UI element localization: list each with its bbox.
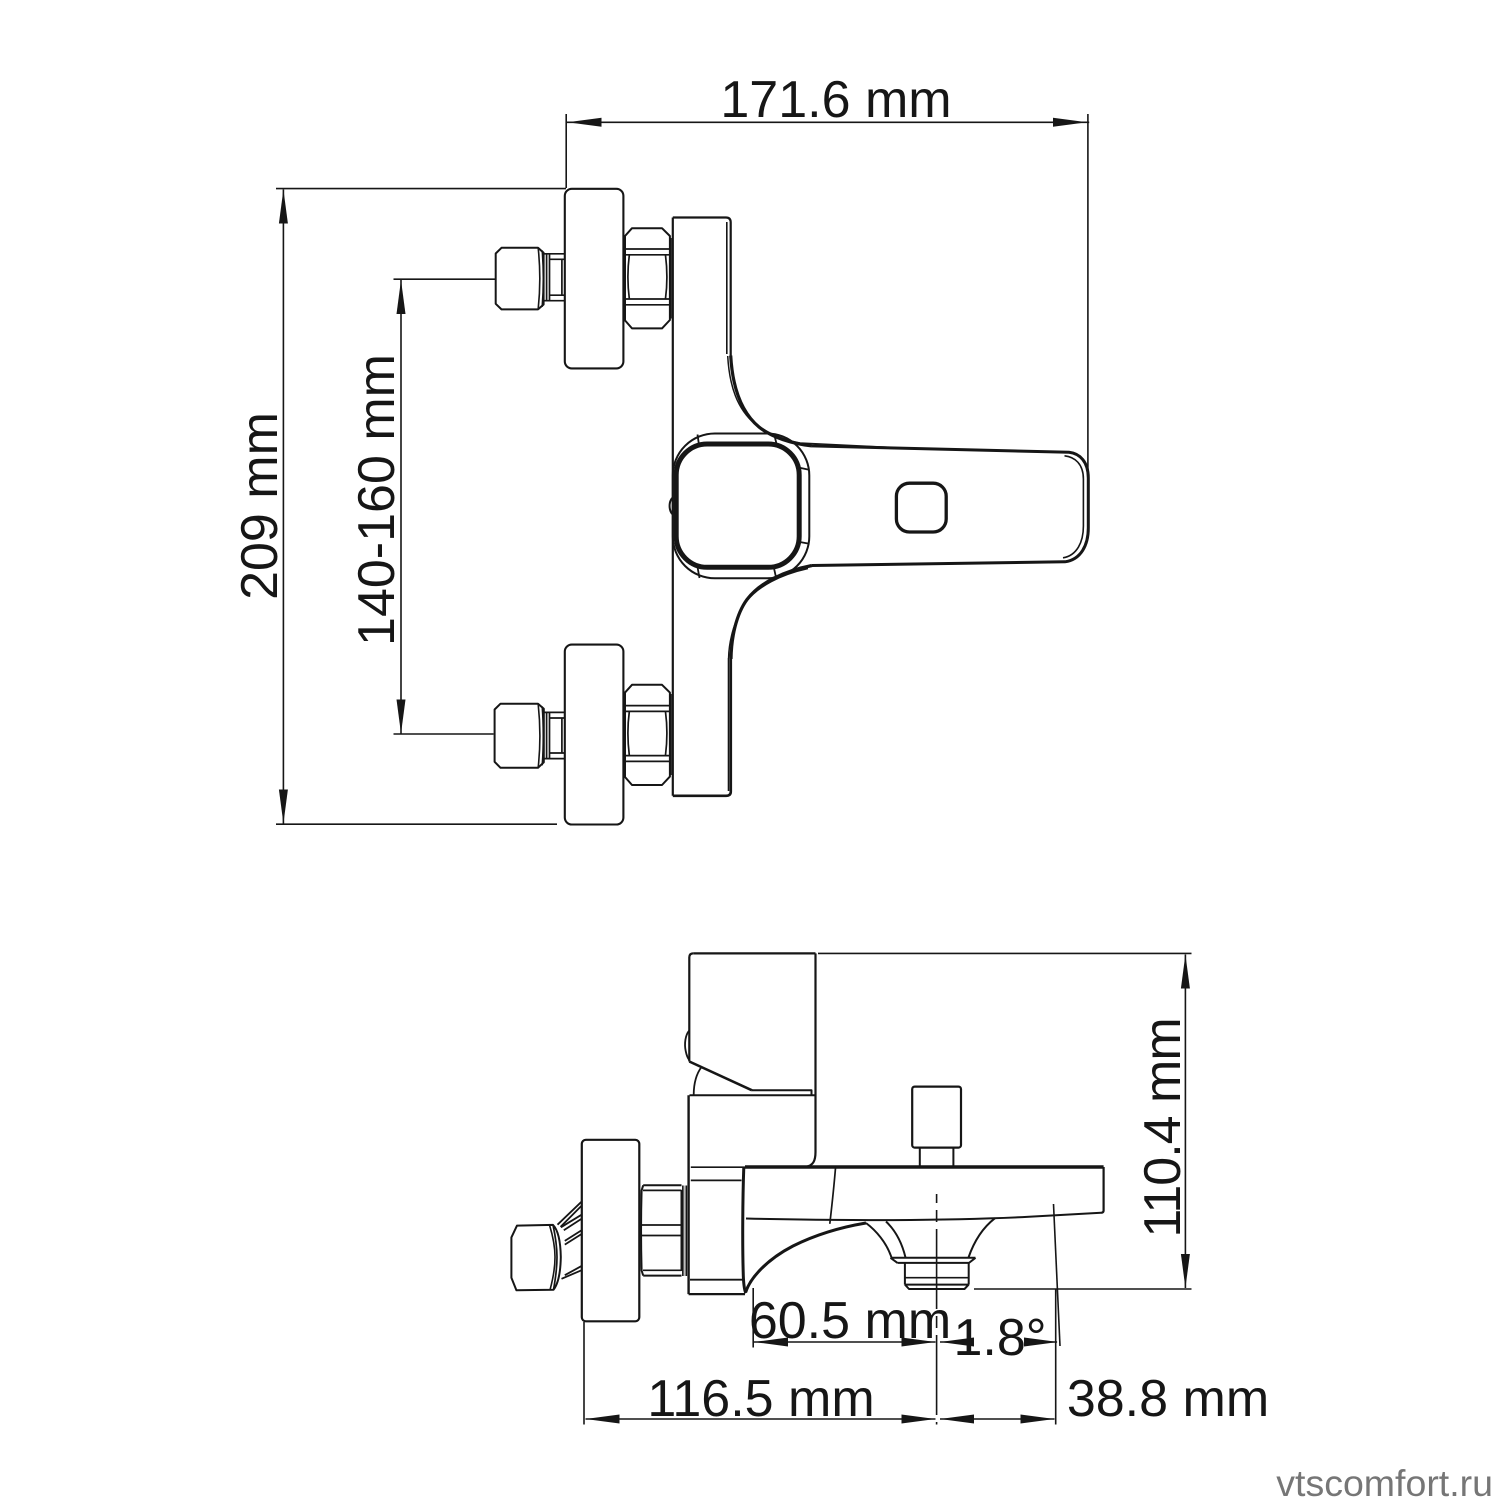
svg-text:vtscomfort.ru: vtscomfort.ru bbox=[1276, 1462, 1493, 1504]
svg-text:140-160 mm: 140-160 mm bbox=[348, 354, 406, 646]
svg-text:1.8°: 1.8° bbox=[953, 1309, 1046, 1367]
svg-text:110.4 mm: 110.4 mm bbox=[1134, 1018, 1192, 1237]
svg-text:116.5 mm: 116.5 mm bbox=[647, 1370, 874, 1428]
svg-text:171.6 mm: 171.6 mm bbox=[720, 71, 951, 129]
svg-text:60.5 mm: 60.5 mm bbox=[749, 1292, 951, 1350]
svg-text:209 mm: 209 mm bbox=[231, 412, 289, 600]
svg-text:38.8 mm: 38.8 mm bbox=[1067, 1370, 1269, 1428]
